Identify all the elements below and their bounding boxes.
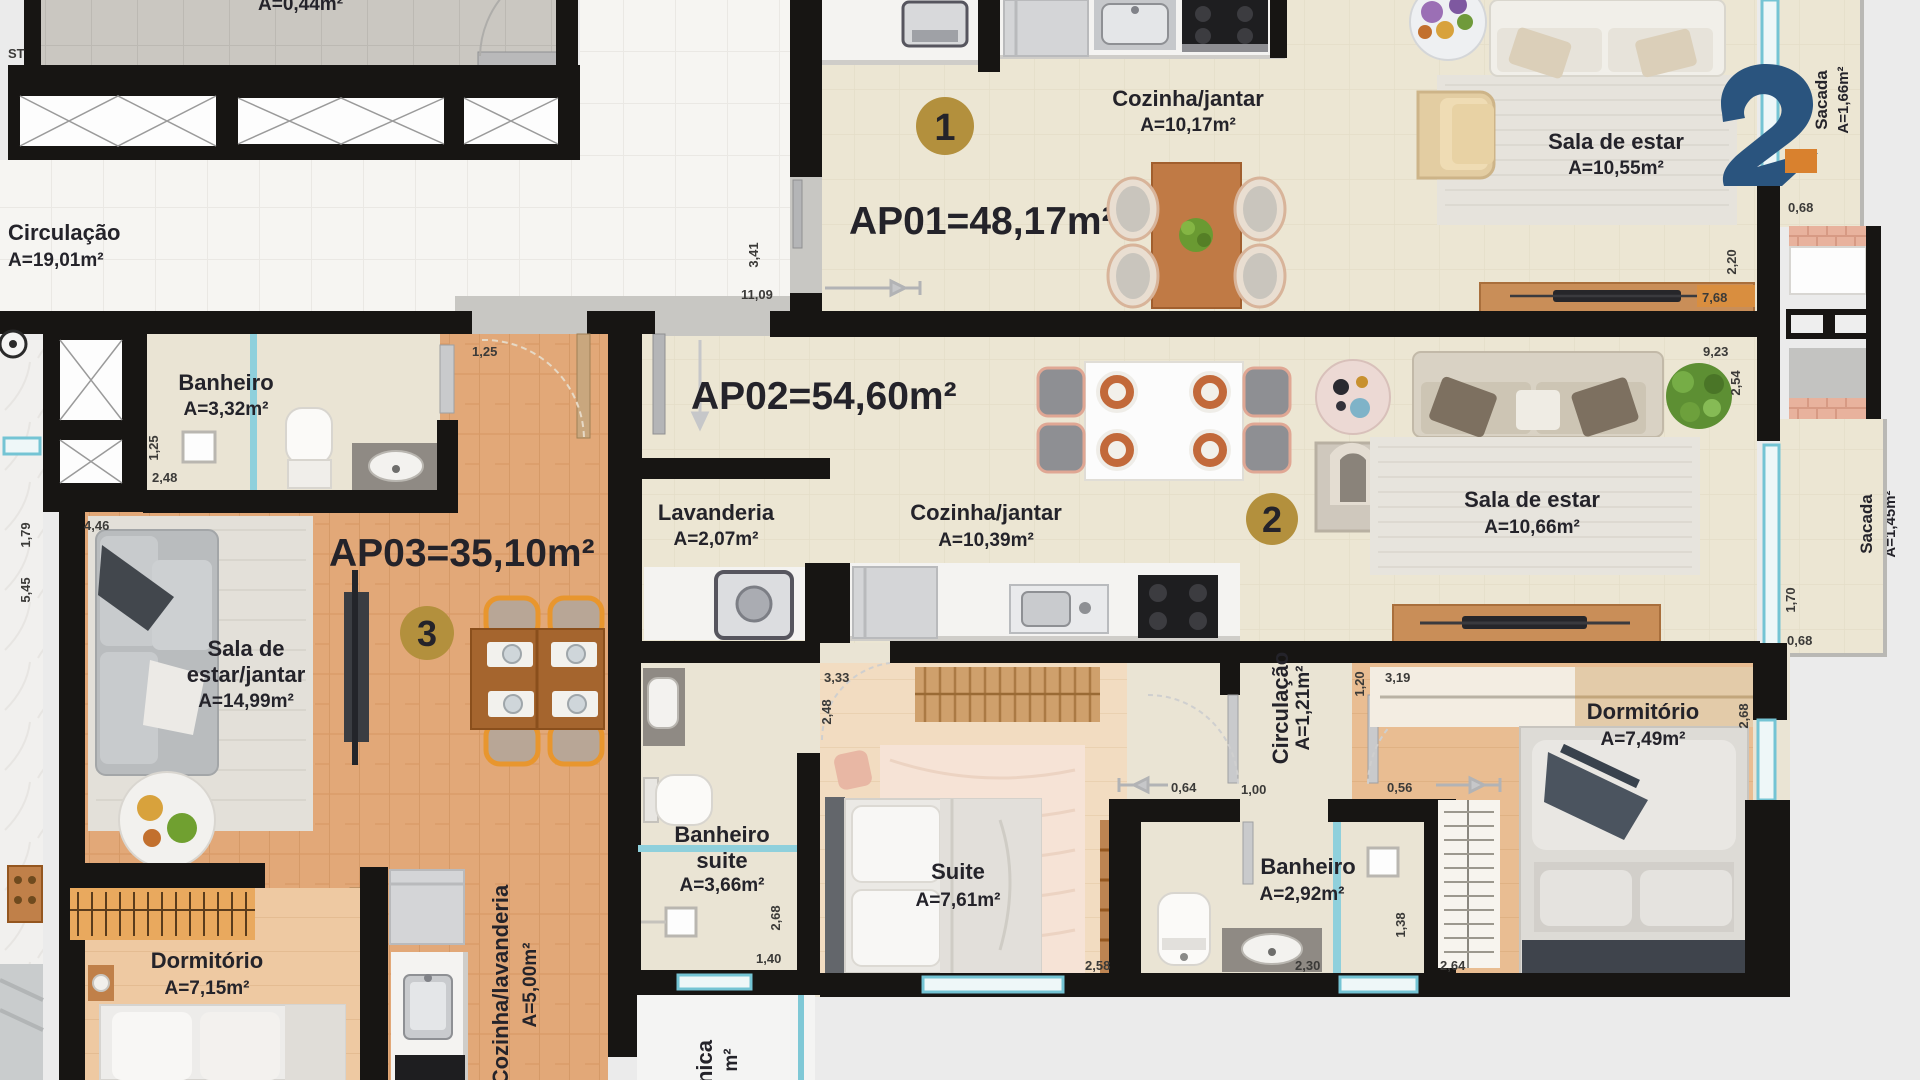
svg-text:A=2,92m²: A=2,92m²	[1259, 884, 1344, 905]
svg-text:Sala de estar: Sala de estar	[1548, 129, 1684, 154]
svg-text:Sala de estar: Sala de estar	[1464, 487, 1600, 512]
svg-text:A=7,15m²: A=7,15m²	[164, 978, 249, 999]
svg-text:A=10,17m²: A=10,17m²	[1140, 115, 1236, 136]
svg-text:2,58: 2,58	[1085, 958, 1110, 973]
svg-text:Lavanderia: Lavanderia	[658, 500, 775, 525]
svg-text:4,46: 4,46	[84, 518, 109, 533]
svg-text:ST: ST	[8, 46, 25, 61]
svg-text:A=7,61m²: A=7,61m²	[915, 890, 1000, 911]
svg-text:Cozinha/jantar: Cozinha/jantar	[1112, 86, 1264, 111]
svg-text:2,30: 2,30	[1295, 958, 1320, 973]
svg-text:AP01=48,17m²: AP01=48,17m²	[849, 200, 1115, 243]
svg-text:A=3,32m²: A=3,32m²	[183, 399, 268, 420]
svg-text:1: 1	[934, 107, 955, 149]
svg-text:1,38: 1,38	[1393, 912, 1408, 937]
svg-text:1,70: 1,70	[1783, 587, 1798, 612]
svg-text:2,68: 2,68	[768, 905, 783, 930]
svg-text:Circulação: Circulação	[8, 220, 121, 245]
svg-text:Cozinha/jantar: Cozinha/jantar	[910, 500, 1062, 525]
svg-text:m²: m²	[721, 1048, 742, 1071]
svg-text:1,00: 1,00	[1241, 782, 1266, 797]
svg-text:Circulação: Circulação	[1268, 652, 1293, 765]
svg-text:A=1,21m²: A=1,21m²	[1293, 665, 1314, 750]
svg-text:2,48: 2,48	[152, 470, 177, 485]
svg-text:2,68: 2,68	[1736, 703, 1751, 728]
svg-text:A=3,66m²: A=3,66m²	[679, 875, 764, 896]
svg-text:estar/jantar: estar/jantar	[187, 662, 306, 687]
svg-text:11,09: 11,09	[741, 287, 773, 302]
svg-text:3,33: 3,33	[824, 670, 849, 685]
svg-text:Sala de: Sala de	[207, 636, 284, 661]
svg-text:A=10,66m²: A=10,66m²	[1484, 517, 1580, 538]
svg-text:Banheiro: Banheiro	[178, 370, 273, 395]
svg-text:3,41: 3,41	[746, 242, 761, 267]
svg-text:9,23: 9,23	[1703, 344, 1728, 359]
svg-text:2,48: 2,48	[819, 699, 834, 724]
svg-text:0,56: 0,56	[1387, 780, 1412, 795]
svg-text:7,68: 7,68	[1702, 290, 1727, 305]
svg-text:Cozinha/lavanderia: Cozinha/lavanderia	[488, 884, 513, 1080]
svg-text:1,40: 1,40	[756, 951, 781, 966]
svg-text:A=7,49m²: A=7,49m²	[1600, 729, 1685, 750]
svg-text:A=10,39m²: A=10,39m²	[938, 530, 1034, 551]
svg-text:Dormitório: Dormitório	[1587, 699, 1699, 724]
svg-text:1,20: 1,20	[1352, 671, 1367, 696]
svg-text:0,68: 0,68	[1787, 633, 1812, 648]
svg-text:1,25: 1,25	[146, 435, 161, 460]
svg-text:5,45: 5,45	[18, 577, 33, 602]
svg-text:Suite: Suite	[931, 859, 985, 884]
svg-text:2: 2	[1262, 499, 1282, 540]
svg-text:Sacada: Sacada	[1857, 494, 1876, 554]
svg-text:A=5,00m²: A=5,00m²	[520, 942, 541, 1027]
svg-text:2,54: 2,54	[1728, 370, 1743, 396]
svg-text:0,68: 0,68	[1788, 200, 1813, 215]
svg-text:A=19,01m²: A=19,01m²	[8, 250, 104, 271]
svg-text:A=1,66m²: A=1,66m²	[1835, 66, 1852, 133]
svg-text:1,79: 1,79	[18, 522, 33, 547]
svg-text:1,25: 1,25	[472, 344, 497, 359]
svg-text:suite: suite	[696, 848, 747, 873]
svg-text:Banheiro: Banheiro	[1260, 854, 1355, 879]
svg-text:AP03=35,10m²: AP03=35,10m²	[329, 532, 595, 575]
svg-text:A=14,99m²: A=14,99m²	[198, 691, 294, 712]
svg-text:Dormitório: Dormitório	[151, 948, 263, 973]
svg-text:Sacada: Sacada	[1812, 70, 1831, 130]
svg-text:nica: nica	[692, 1039, 717, 1080]
svg-text:Banheiro: Banheiro	[674, 822, 769, 847]
svg-text:0,64: 0,64	[1171, 780, 1197, 795]
svg-text:3,19: 3,19	[1385, 670, 1410, 685]
svg-text:A=2,07m²: A=2,07m²	[673, 529, 758, 550]
svg-text:2,20: 2,20	[1724, 249, 1739, 274]
svg-text:A=10,55m²: A=10,55m²	[1568, 158, 1664, 179]
svg-text:2,64: 2,64	[1440, 958, 1466, 973]
svg-text:3: 3	[417, 613, 437, 654]
svg-text:AP02=54,60m²: AP02=54,60m²	[691, 375, 957, 418]
svg-text:A=0,44m²: A=0,44m²	[258, 0, 343, 15]
